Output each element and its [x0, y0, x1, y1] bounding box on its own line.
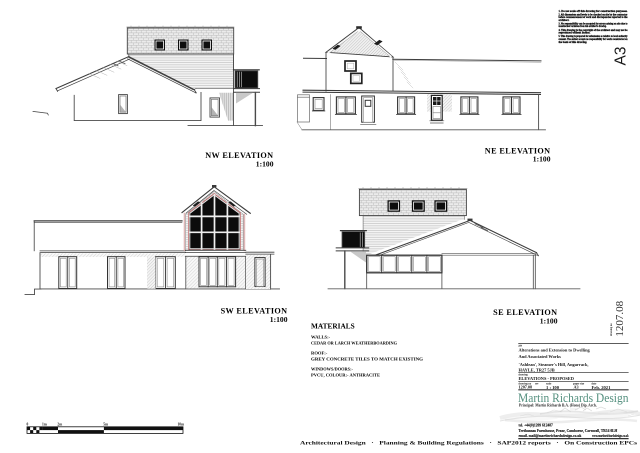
svg-text:1m: 1m — [42, 422, 47, 426]
svg-text:the basis of this drawing.: the basis of this drawing. — [559, 41, 588, 44]
svg-text:1207.08: 1207.08 — [519, 385, 533, 390]
svg-text:1:100: 1:100 — [256, 160, 274, 169]
svg-text:A3: A3 — [574, 385, 579, 390]
svg-text:tel. +44(0)1209 612487: tel. +44(0)1209 612487 — [519, 424, 553, 428]
svg-text:drawing no: drawing no — [610, 323, 613, 336]
svg-text:And Associated Works: And Associated Works — [519, 354, 562, 359]
svg-text:ROOF:-: ROOF:- — [311, 351, 328, 356]
svg-text:email. mail@martinrichardsdesi: email. mail@martinrichardsdesign.co.uk — [519, 434, 582, 438]
svg-text:reproduced without licence.: reproduced without licence. — [559, 32, 591, 35]
svg-text:1:100: 1:100 — [540, 316, 558, 325]
svg-text:Feb. 2021: Feb. 2021 — [592, 385, 612, 390]
svg-text:0: 0 — [27, 422, 29, 426]
svg-text:CEDAR OR LARCH WEATHERBOARDING: CEDAR OR LARCH WEATHERBOARDING — [311, 340, 397, 345]
svg-text:1:100: 1:100 — [533, 155, 551, 164]
svg-text:A3: A3 — [613, 47, 630, 66]
svg-text:ELEVATIONS - PROPOSED: ELEVATIONS - PROPOSED — [519, 376, 574, 381]
svg-text:1 : 100: 1 : 100 — [546, 385, 560, 390]
svg-text:unauthorised variations from t: unauthorised variations from this archit… — [559, 25, 607, 28]
svg-text:1:100: 1:100 — [270, 315, 288, 324]
svg-text:Alterations and Extension to D: Alterations and Extension to Dwelling — [519, 348, 591, 353]
svg-text:Trethannas Farmhouse, Praze, C: Trethannas Farmhouse, Praze, Camborne, C… — [519, 429, 618, 433]
svg-text:WALLS:-: WALLS:- — [311, 334, 331, 339]
svg-text:GREY CONCRETE TILES TO MATCH E: GREY CONCRETE TILES TO MATCH EXISTING — [311, 356, 423, 361]
svg-text:MATERIALS: MATERIALS — [311, 321, 355, 330]
svg-text:'Ashlean', Steamer's Hill, Ang: 'Ashlean', Steamer's Hill, Angarrack, — [519, 362, 589, 367]
svg-text:5m: 5m — [103, 422, 108, 426]
svg-text:WINDOWS/DOORS:-: WINDOWS/DOORS:- — [311, 367, 353, 372]
svg-text:HAYLE, TR27 5JB: HAYLE, TR27 5JB — [519, 367, 555, 372]
svg-text:www.martinrichardsdesign.co.uk: www.martinrichardsdesign.co.uk — [592, 434, 629, 438]
svg-text:10m: 10m — [178, 422, 185, 426]
svg-text:2m: 2m — [57, 422, 62, 426]
svg-text:1207.08: 1207.08 — [614, 300, 626, 336]
svg-text:Principal: Martin Richards B.A: Principal: Martin Richards B.A. (Hons) D… — [519, 404, 597, 408]
svg-text:PVCU, COLOUR:- ANTHRACITE: PVCU, COLOUR:- ANTHRACITE — [311, 373, 380, 378]
svg-text:Architectural Design · Pla: Architectural Design · Planning & Buildi… — [300, 440, 637, 446]
